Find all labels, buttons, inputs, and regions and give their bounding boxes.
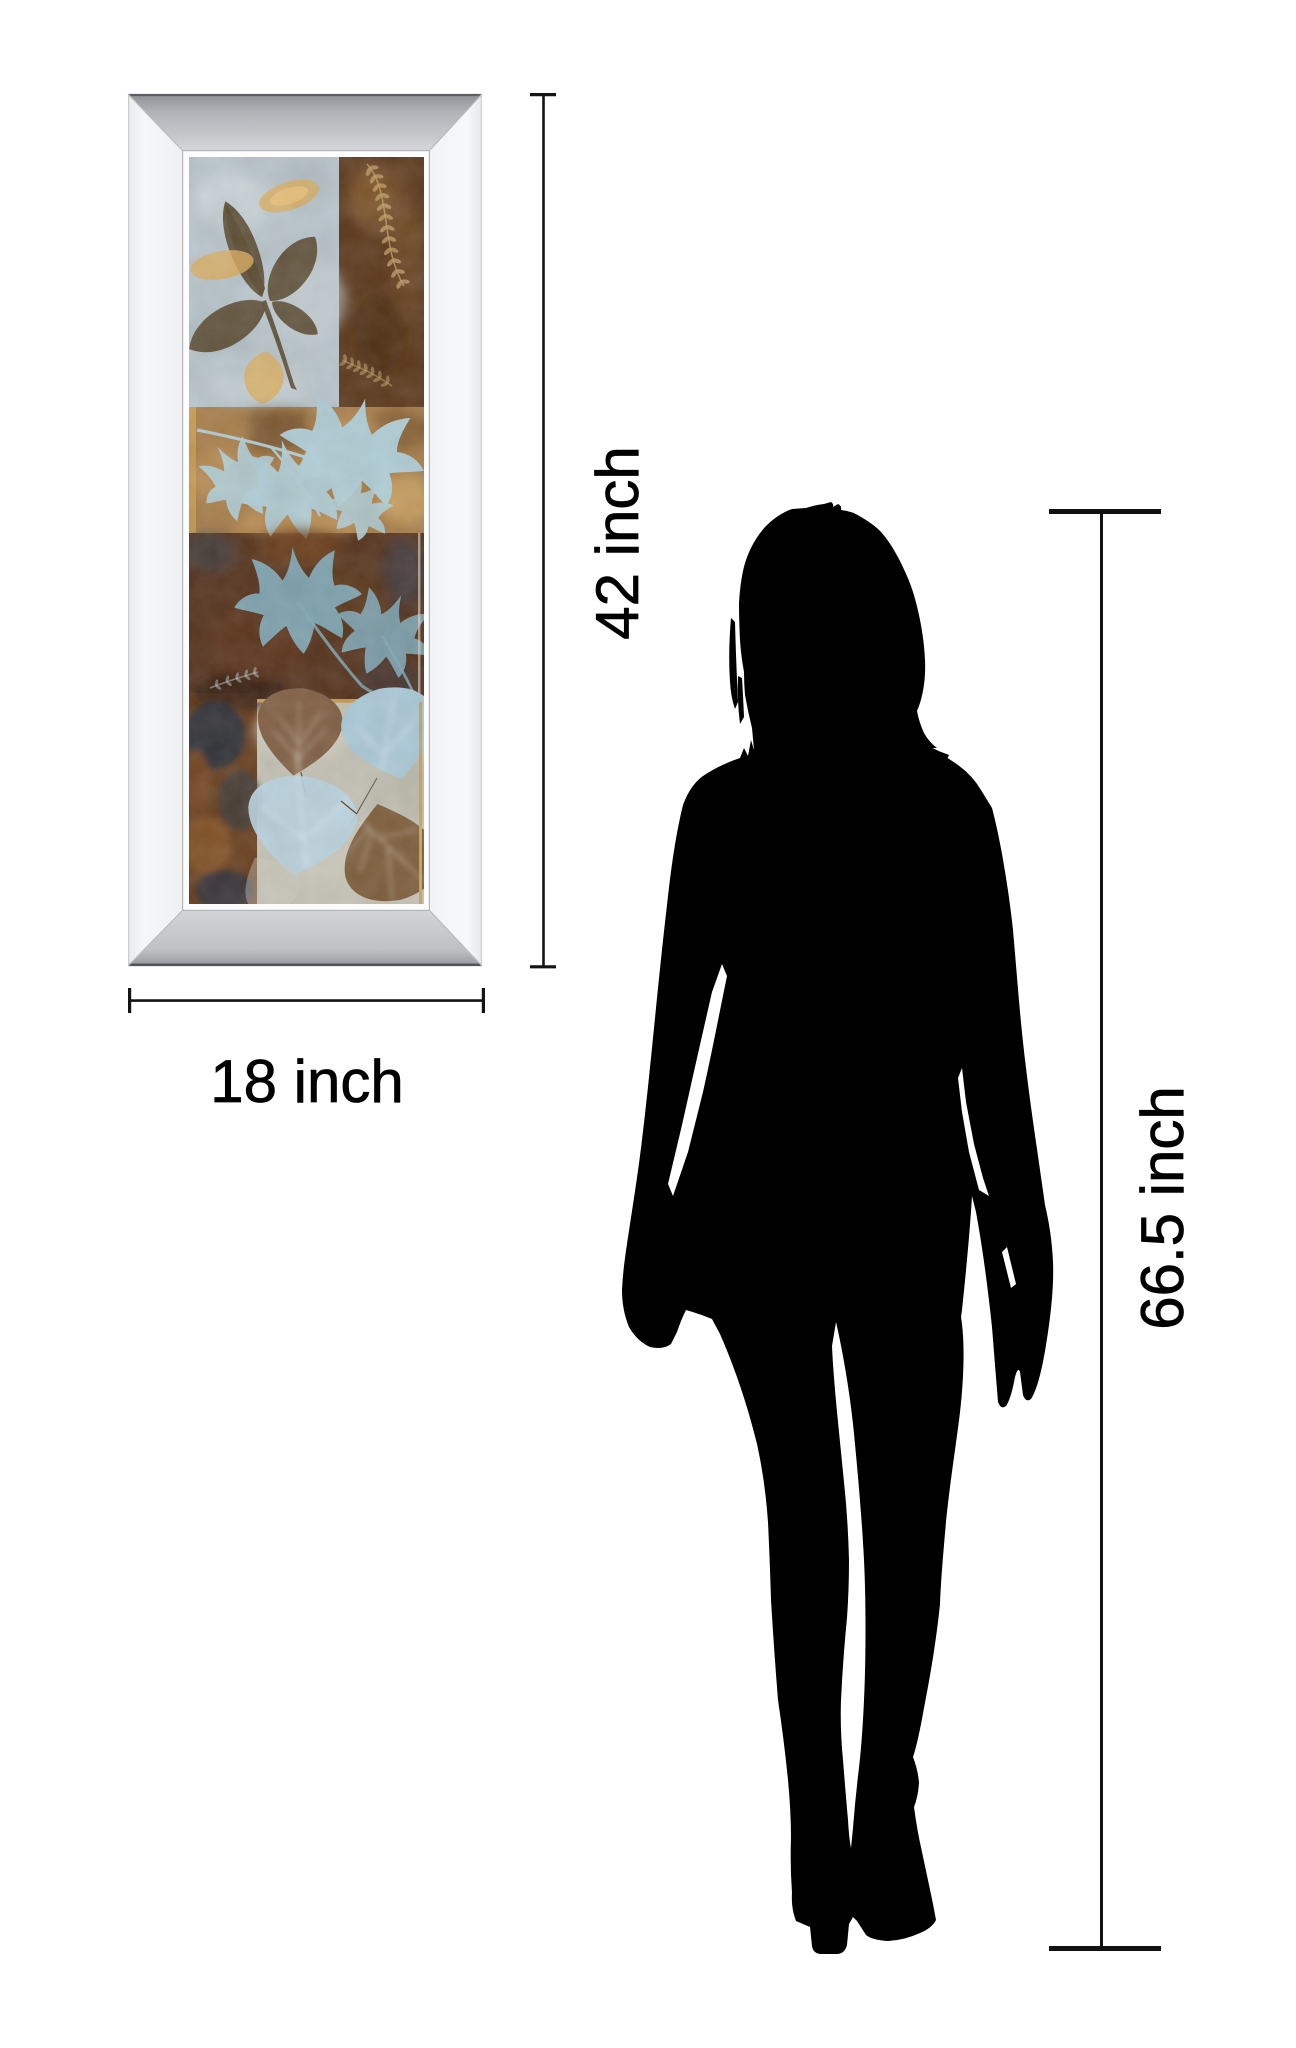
svg-text:18 inch: 18 inch: [210, 1048, 403, 1115]
svg-text:66.5 inch: 66.5 inch: [1129, 1086, 1196, 1330]
svg-text:42 inch: 42 inch: [584, 446, 651, 639]
